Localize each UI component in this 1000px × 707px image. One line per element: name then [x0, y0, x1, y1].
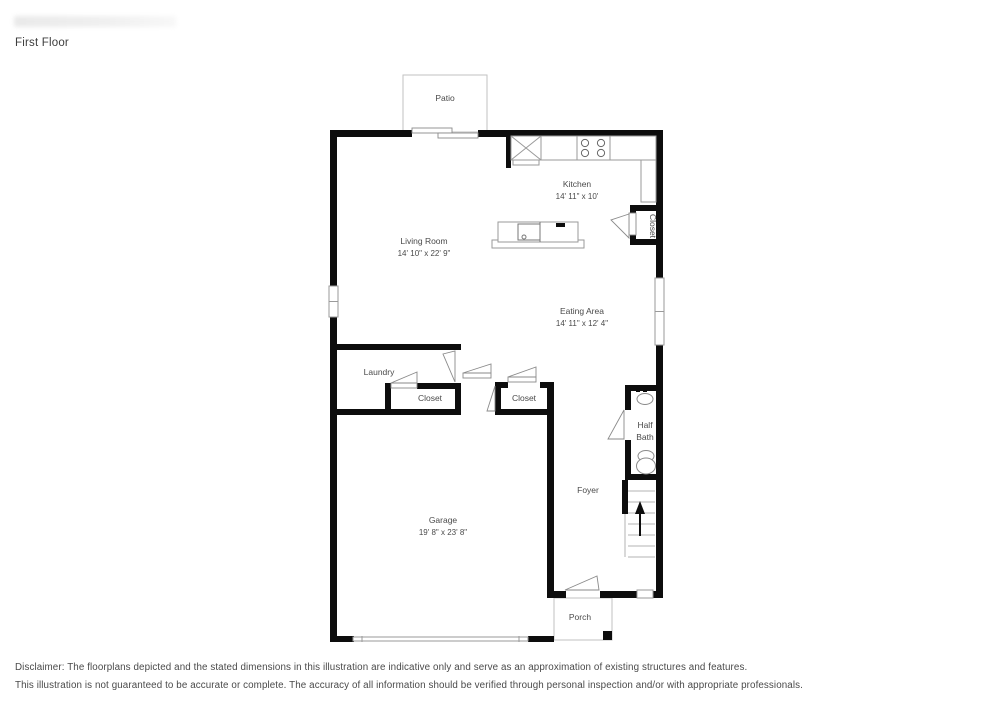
label-half: Half: [637, 420, 653, 430]
label-foyer: Foyer: [577, 485, 599, 495]
dims-eating-area: 14' 11" x 12' 4": [556, 319, 608, 328]
label-patio: Patio: [435, 93, 455, 103]
label-closet-2: Closet: [512, 393, 537, 403]
walls: [330, 130, 663, 642]
dims-kitchen: 14' 11" x 10': [556, 192, 599, 201]
stairs: [625, 491, 655, 557]
toilet-icon: [637, 451, 656, 475]
floorplan-page: First Floor: [0, 0, 1000, 707]
label-garage: Garage: [429, 515, 458, 525]
kitchen-closet-door: [629, 213, 636, 235]
label-living-room: Living Room: [400, 236, 447, 246]
garage-door: [353, 636, 528, 642]
bathroom-sink-icon: [637, 394, 653, 405]
laundry-door: [443, 351, 455, 382]
foyer-window: [637, 590, 653, 598]
label-eating-area: Eating Area: [560, 306, 604, 316]
dims-living-room: 14' 10" x 22' 9": [398, 249, 451, 258]
porch-post: [603, 631, 612, 640]
label-closet-1: Closet: [418, 393, 443, 403]
floorplan-drawing: Patio Kitchen 14' 11" x 10' Living Room …: [0, 0, 1000, 707]
closet1-door: [391, 383, 417, 388]
label-laundry: Laundry: [364, 367, 395, 377]
label-kitchen: Kitchen: [563, 179, 592, 189]
dims-garage: 19' 8" x 23' 8": [419, 528, 467, 537]
halfbath-door: [608, 410, 624, 439]
garage-entry-door: [487, 386, 495, 411]
label-porch: Porch: [569, 612, 591, 622]
island-sink-icon: [518, 224, 540, 240]
stove-icon: [577, 136, 610, 160]
stairs-up-arrow-icon: [635, 501, 645, 536]
disclaimer-line-1: Disclaimer: The floorplans depicted and …: [15, 662, 990, 673]
front-door: [565, 576, 599, 590]
disclaimer-line-2: This illustration is not guaranteed to b…: [15, 680, 990, 691]
halfbath-fixtures: [636, 388, 656, 474]
label-closet-kitchen: Closet: [648, 214, 658, 239]
room-labels: Patio Kitchen 14' 11" x 10' Living Room …: [364, 93, 658, 622]
closet2-door: [508, 377, 536, 382]
label-bath: Bath: [636, 432, 654, 442]
patio-outline: [403, 75, 487, 132]
hall-door: [463, 373, 491, 378]
kitchen-island: [492, 222, 584, 248]
